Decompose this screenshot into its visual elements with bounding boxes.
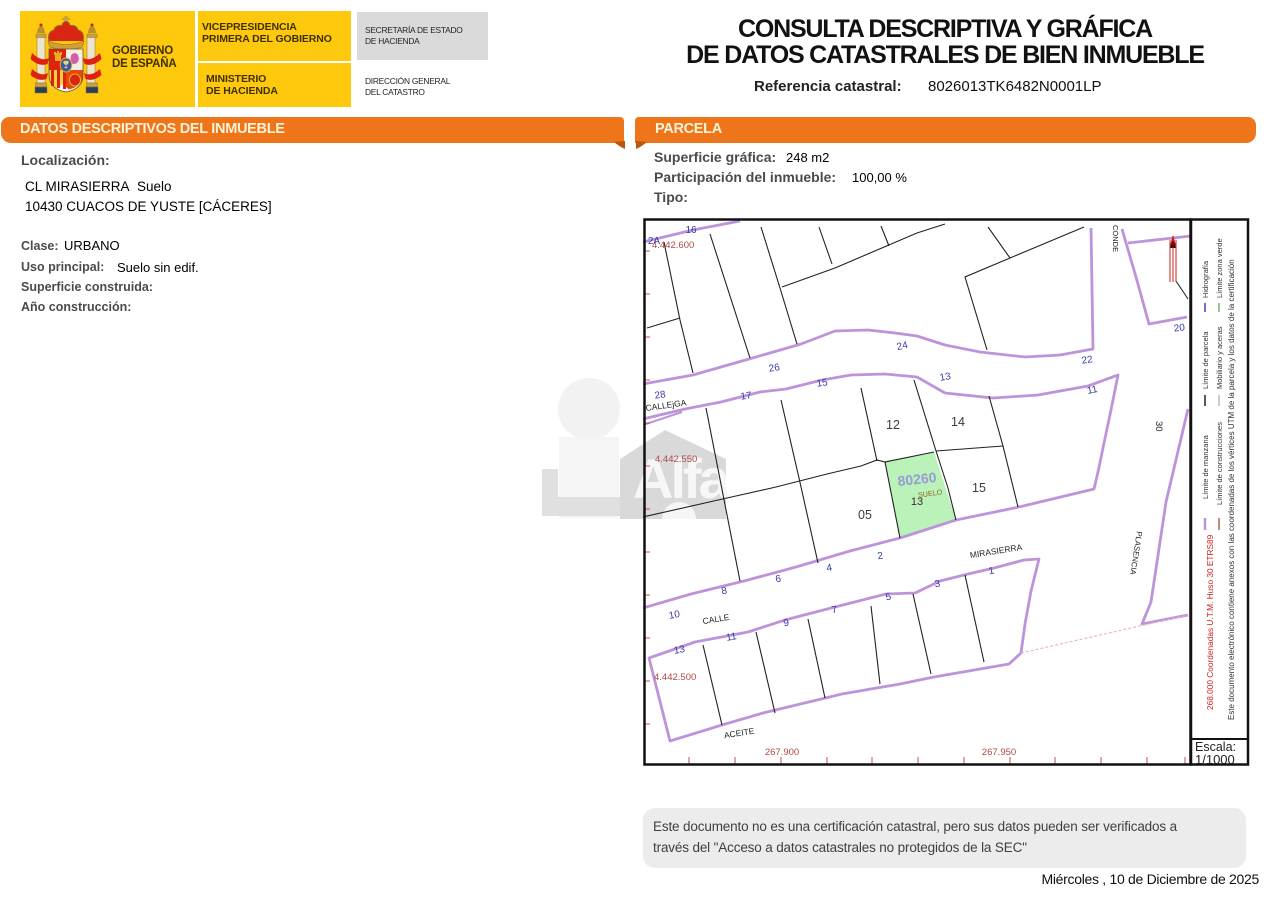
svg-text:24: 24 <box>896 340 910 353</box>
svg-text:4.442.500: 4.442.500 <box>654 672 696 683</box>
svg-text:2: 2 <box>877 551 885 563</box>
svg-text:10: 10 <box>668 609 681 622</box>
svg-text:17: 17 <box>740 390 753 403</box>
svg-text:20: 20 <box>1173 322 1186 335</box>
svg-text:15: 15 <box>972 481 986 495</box>
svg-text:Hidrografía: Hidrografía <box>1201 260 1210 298</box>
svg-text:Límite de parcela: Límite de parcela <box>1201 331 1210 389</box>
svg-text:ACEITE: ACEITE <box>723 726 755 741</box>
svg-text:Límite de construcciones: Límite de construcciones <box>1215 422 1224 505</box>
svg-text:4: 4 <box>826 563 834 575</box>
svg-text:22: 22 <box>1081 354 1094 367</box>
svg-text:CALLE: CALLE <box>702 612 730 626</box>
svg-text:Este documento electrónico con: Este documento electrónico contiene anex… <box>1227 259 1236 720</box>
svg-text:4.442.550: 4.442.550 <box>655 454 697 465</box>
svg-text:8: 8 <box>721 586 729 598</box>
svg-text:6: 6 <box>775 574 783 586</box>
svg-text:15: 15 <box>816 377 829 390</box>
svg-text:CONDE: CONDE <box>1111 225 1120 252</box>
svg-text:2A: 2A <box>648 236 661 247</box>
svg-text:Límite zona verde: Límite zona verde <box>1215 238 1224 298</box>
svg-text:Límite de manzana: Límite de manzana <box>1201 434 1210 499</box>
svg-text:26: 26 <box>768 362 781 375</box>
svg-text:267.900: 267.900 <box>765 747 799 758</box>
svg-text:05: 05 <box>858 508 872 522</box>
svg-text:268.000 Coordenadas U.T.M. Hus: 268.000 Coordenadas U.T.M. Huso 30 ETRS8… <box>1205 534 1215 710</box>
svg-text:11: 11 <box>1086 384 1099 397</box>
svg-text:30: 30 <box>1153 421 1164 432</box>
svg-text:12: 12 <box>886 418 900 432</box>
svg-text:13: 13 <box>911 496 923 508</box>
svg-text:PLASENCIA: PLASENCIA <box>1128 531 1144 576</box>
svg-text:16: 16 <box>685 225 697 236</box>
svg-text:Mobiliario y aceras: Mobiliario y aceras <box>1215 326 1224 389</box>
svg-text:13: 13 <box>939 371 952 384</box>
svg-text:1/1000: 1/1000 <box>1195 752 1235 766</box>
svg-text:14: 14 <box>951 415 965 429</box>
svg-text:267.950: 267.950 <box>982 747 1016 758</box>
svg-text:MIRASIERRA: MIRASIERRA <box>969 542 1023 560</box>
